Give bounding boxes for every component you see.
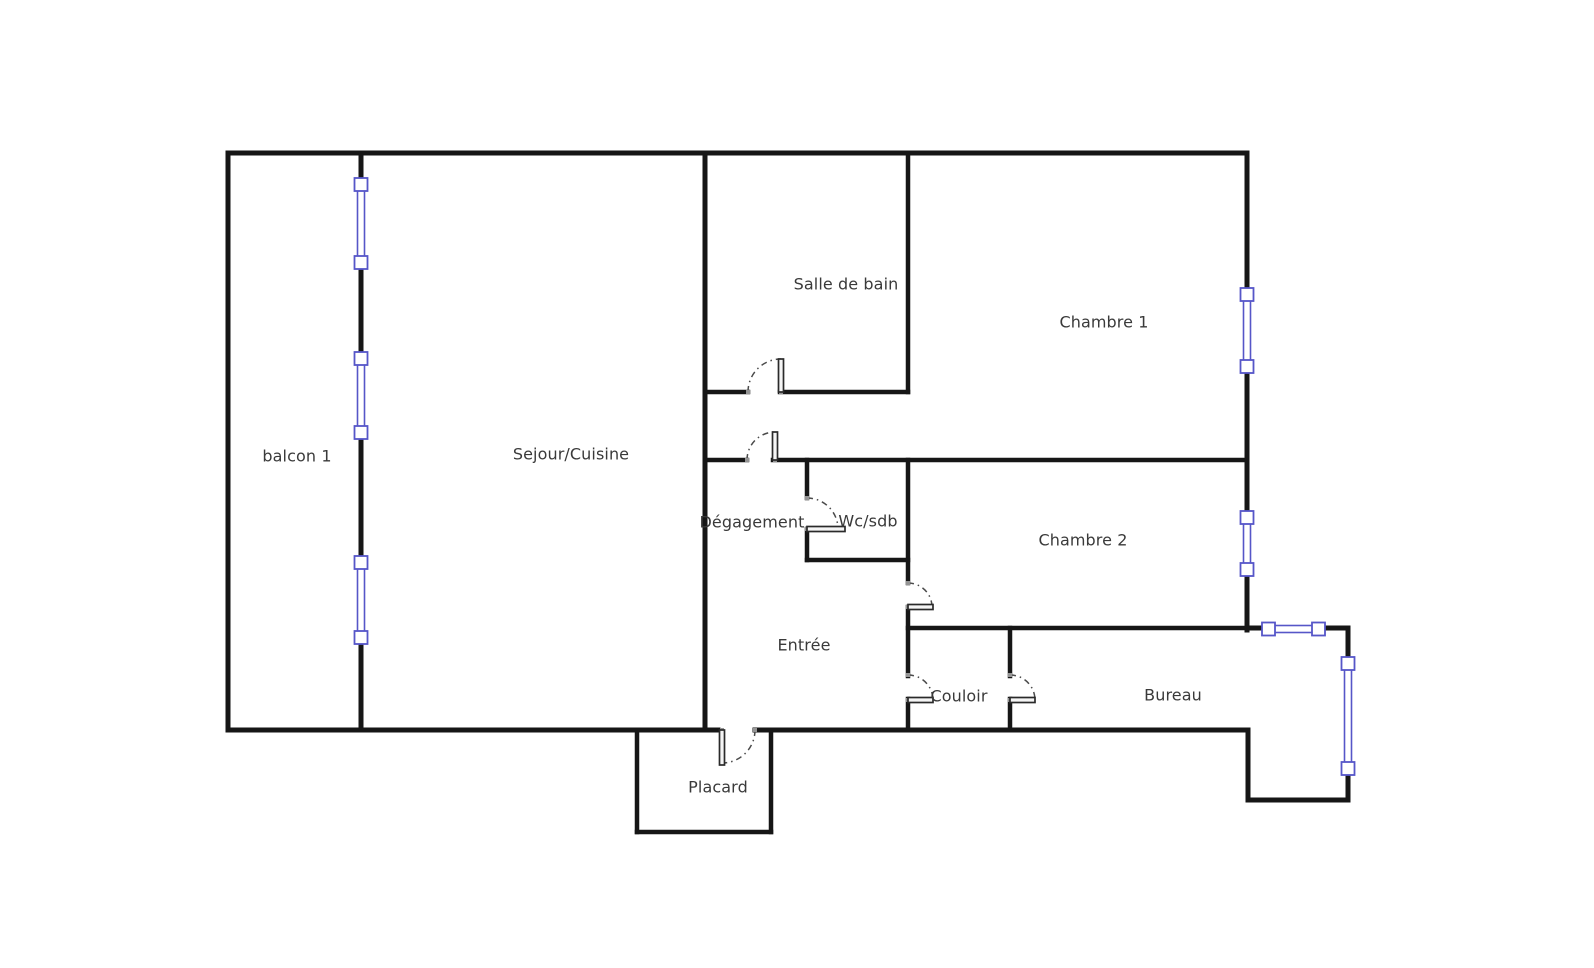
- door-leaf: [1010, 698, 1035, 703]
- window-cap: [355, 631, 368, 644]
- window-cap: [355, 256, 368, 269]
- window-cap: [355, 178, 368, 191]
- room-label-degagement: Dégagement: [700, 513, 805, 532]
- window-cap: [1342, 762, 1355, 775]
- door-swing-arc: [908, 675, 933, 700]
- door-leaf: [908, 698, 933, 703]
- window-rail: [1244, 300, 1251, 361]
- walls: [228, 153, 1348, 832]
- window-chambre-1: [1241, 288, 1254, 373]
- window-rail: [358, 364, 365, 427]
- door-swing-arc: [747, 432, 775, 460]
- door-jamb-nub: [906, 673, 910, 677]
- window-cap: [1241, 288, 1254, 301]
- window-rail: [1244, 523, 1251, 564]
- room-label-wc-sdb: Wc/sdb: [838, 512, 897, 531]
- window-chambre-2: [1241, 511, 1254, 576]
- door-leaf: [773, 432, 778, 460]
- window-cap: [1262, 623, 1275, 636]
- door-swing-arc: [807, 498, 838, 529]
- window-rail: [358, 190, 365, 257]
- window-rail: [1345, 669, 1352, 763]
- door-jamb-nub: [1008, 673, 1012, 677]
- door-leaf: [908, 605, 933, 610]
- window-cap: [355, 426, 368, 439]
- window-cap: [1241, 360, 1254, 373]
- room-label-chambre-2: Chambre 2: [1038, 531, 1127, 550]
- door-swing-arc: [722, 730, 755, 763]
- door-jamb-nub: [805, 496, 809, 500]
- door-jamb-nub: [906, 581, 910, 585]
- window-cap: [1312, 623, 1325, 636]
- room-label-chambre-1: Chambre 1: [1059, 313, 1148, 332]
- door-chambre-2: [906, 581, 933, 610]
- door-jamb-nub: [745, 458, 749, 462]
- door-jamb-nub: [753, 728, 757, 732]
- window-cap: [355, 352, 368, 365]
- room-label-balcon-1: balcon 1: [262, 447, 331, 466]
- door-leaf: [720, 730, 725, 765]
- window-rail: [1274, 626, 1313, 633]
- room-label-bureau: Bureau: [1144, 686, 1202, 705]
- door-swing-arc: [908, 583, 932, 607]
- room-label-sejour-cuisine: Sejour/Cuisine: [513, 445, 629, 464]
- door-leaf: [779, 359, 784, 392]
- floor-plan-canvas: [0, 0, 1594, 968]
- window-cap: [1241, 563, 1254, 576]
- window-bureau-top: [1262, 623, 1325, 636]
- window-balcon-middle: [355, 352, 368, 439]
- door-placard: [720, 728, 758, 765]
- window-bureau-right: [1342, 657, 1355, 775]
- door-salle-de-bain: [746, 359, 784, 394]
- window-cap: [1241, 511, 1254, 524]
- windows: [355, 178, 1355, 775]
- door-jamb-nub: [746, 390, 750, 394]
- window-balcon-upper: [355, 178, 368, 269]
- window-balcon-lower: [355, 556, 368, 644]
- door-chambre-1-nook: [745, 432, 778, 462]
- door-swing-arc: [1010, 675, 1035, 700]
- window-rail: [358, 568, 365, 632]
- room-label-placard: Placard: [688, 778, 748, 797]
- room-label-salle-de-bain: Salle de bain: [794, 275, 899, 294]
- window-cap: [355, 556, 368, 569]
- window-cap: [1342, 657, 1355, 670]
- floor-plan: balcon 1 Sejour/Cuisine Salle de bain Ch…: [0, 0, 1594, 968]
- door-swing-arc: [748, 359, 781, 392]
- room-label-couloir: Couloir: [930, 687, 987, 706]
- room-label-entree: Entrée: [777, 636, 830, 655]
